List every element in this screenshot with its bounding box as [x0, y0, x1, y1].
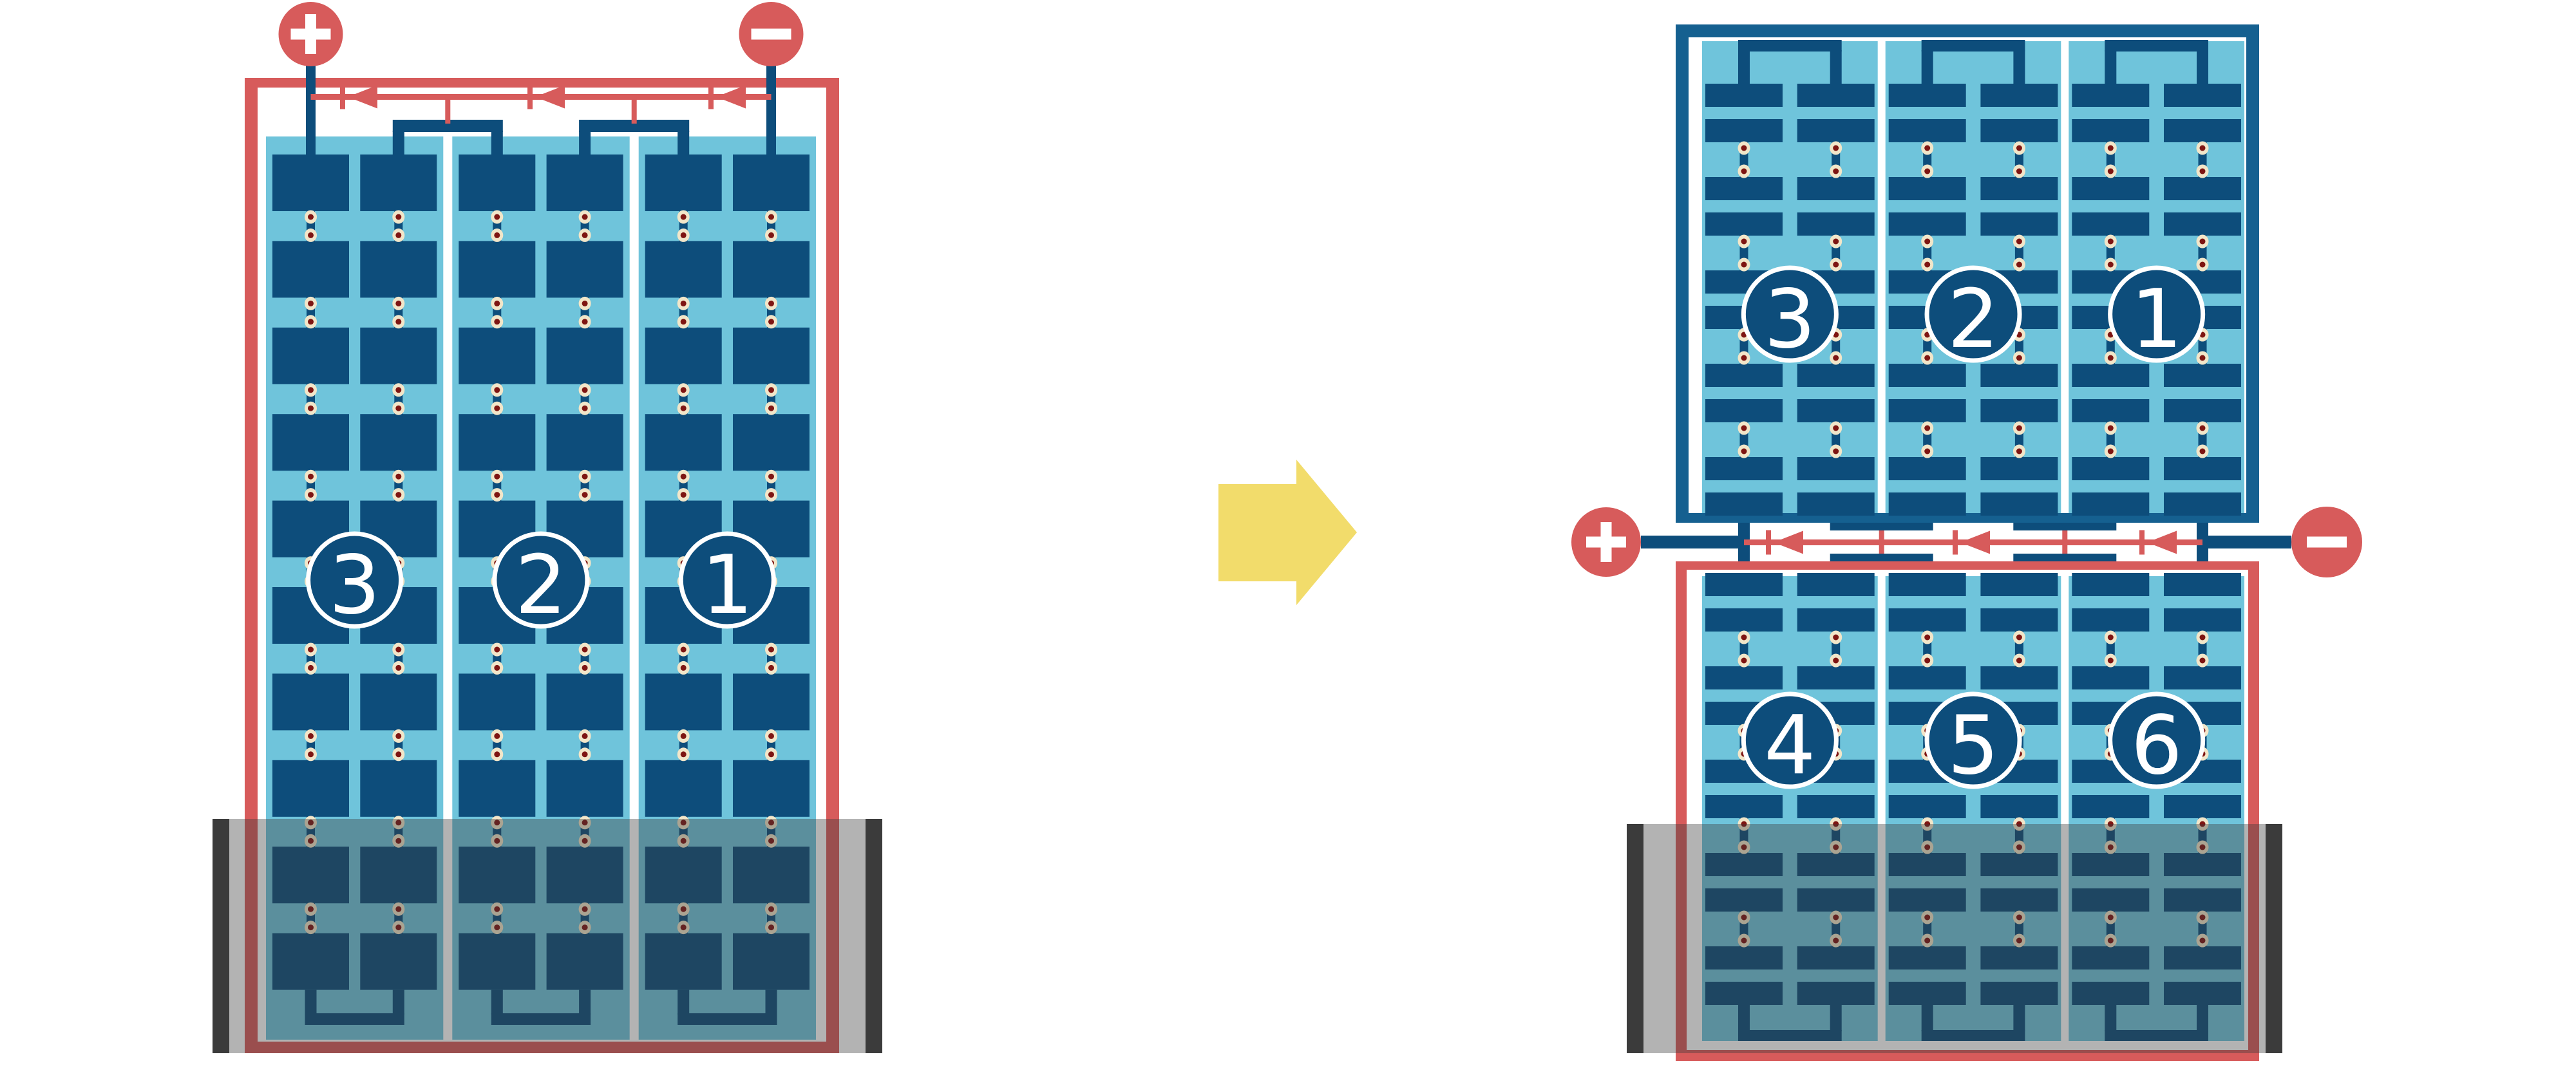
diode-triangle [1960, 531, 1990, 554]
bypass-diode-rail [1744, 530, 2202, 555]
terminal-minus-bar [2307, 537, 2347, 548]
solder-dot [308, 406, 314, 411]
solder-dot [494, 406, 500, 411]
solder-dot [308, 319, 314, 324]
solder-dot [2016, 449, 2022, 454]
solar-cell [547, 760, 623, 817]
solder-dot [681, 214, 687, 220]
transform-arrow [1218, 460, 1357, 605]
solder-dot [2108, 169, 2114, 174]
solar-cell [645, 414, 722, 471]
shade-overlay [1627, 824, 2282, 1053]
junction-tab-bottom [2013, 554, 2116, 561]
solar-cell [645, 328, 722, 384]
solar-cell [1889, 795, 1966, 818]
solder-dot [2108, 635, 2114, 641]
positive-terminal [1571, 507, 1641, 577]
solar-cell [360, 673, 437, 730]
solder-dot [582, 301, 588, 306]
solder-dot [681, 387, 687, 393]
negative-lead-wire [766, 59, 776, 194]
diode-tap [1879, 530, 1884, 554]
link-bar [1738, 40, 1842, 52]
solar-cell [1705, 492, 1783, 516]
solder-dot [1833, 449, 1839, 454]
solder-dot [494, 647, 500, 653]
solder-dot [2016, 635, 2022, 641]
diode-tap [2062, 530, 2067, 554]
diode-cathode-bar [340, 85, 345, 109]
solar-cell [2164, 84, 2241, 107]
link-bar [1922, 40, 2025, 52]
terminal-minus-bar [752, 29, 791, 40]
solder-dot [308, 387, 314, 393]
solar-cell [272, 673, 349, 730]
solar-cell [459, 328, 535, 384]
solder-dot [308, 665, 314, 671]
solder-dot [2108, 262, 2114, 268]
solder-dot [395, 301, 401, 306]
solar-cell [2164, 457, 2241, 480]
positive-lead-wire [306, 59, 316, 194]
solar-cell [1980, 795, 2058, 818]
solder-dot [308, 751, 314, 757]
solder-dot [1741, 426, 1747, 431]
solar-panel-diagram: 321 321456 [0, 0, 2576, 1068]
solar-cell [547, 155, 623, 211]
solder-dot [308, 214, 314, 220]
positive-bus [1641, 536, 1744, 548]
solder-dot [681, 647, 687, 653]
solar-cell [360, 155, 437, 211]
solar-cell [1705, 608, 1783, 632]
solar-cell [1797, 608, 1875, 632]
solar-cell [2072, 457, 2149, 480]
solar-cell [2072, 573, 2149, 596]
solar-cell [459, 760, 535, 817]
half-panel-bottom: 456 [1627, 561, 2282, 1061]
solar-cell [2164, 608, 2241, 632]
shade-overlay [213, 819, 882, 1053]
solder-dot [494, 751, 500, 757]
solder-dot [768, 232, 774, 238]
solder-dot [395, 214, 401, 220]
solder-dot [2108, 145, 2114, 151]
solder-dot [2200, 635, 2206, 641]
solar-cell [1980, 119, 2058, 142]
solder-dot [494, 301, 500, 306]
solder-dot [395, 665, 401, 671]
link-leg [1922, 50, 1933, 85]
solar-cell [1705, 795, 1783, 818]
solder-dot [768, 665, 774, 671]
diode-cathode-bar [527, 85, 533, 109]
solder-dot [1741, 449, 1747, 454]
solder-dot [768, 751, 774, 757]
solder-dot [2108, 449, 2114, 454]
shade-edge-bar [213, 819, 229, 1053]
solar-cell [645, 155, 722, 211]
solder-dot [1833, 145, 1839, 151]
solar-cell [547, 241, 623, 297]
solder-dot [1833, 239, 1839, 245]
solar-cell [2164, 492, 2241, 516]
solder-dot [2200, 262, 2206, 268]
diode-triangle [716, 86, 746, 109]
link-leg [677, 131, 689, 156]
solar-cell [1797, 364, 1875, 387]
solar-cell [459, 414, 535, 471]
string-divider [2061, 41, 2069, 513]
solar-cell [1797, 177, 1875, 200]
solder-dot [308, 301, 314, 306]
solder-dot [494, 474, 500, 480]
solder-dot [681, 751, 687, 757]
diode-triangle [2147, 531, 2177, 554]
solder-dot [1924, 239, 1930, 245]
solar-cell [459, 241, 535, 297]
solar-cell [272, 328, 349, 384]
solar-cell [1980, 399, 2058, 422]
panel-frame-blue [2246, 24, 2259, 523]
solder-dot [2200, 426, 2206, 431]
junction-tab-top [2013, 523, 2116, 530]
solder-dot [768, 387, 774, 393]
shade-translucent [1627, 824, 2282, 1053]
solar-cell [2072, 666, 2149, 689]
string-label-number: 5 [1947, 698, 1999, 792]
solar-cell [733, 414, 810, 471]
solar-cell [360, 241, 437, 297]
solder-dot [395, 751, 401, 757]
string-label-number: 3 [329, 538, 381, 632]
solder-dot [2016, 145, 2022, 151]
solder-dot [768, 214, 774, 220]
solder-dot [308, 232, 314, 238]
solder-dot [768, 647, 774, 653]
solder-dot [2200, 169, 2206, 174]
shade-edge-bar [2266, 824, 2282, 1053]
diode-tap [632, 97, 637, 124]
solar-cell [1797, 666, 1875, 689]
solar-cell [2072, 608, 2149, 632]
solar-cell [547, 414, 623, 471]
solar-cell [360, 414, 437, 471]
diode-cathode-bar [2139, 530, 2145, 555]
solder-dot [582, 492, 588, 498]
solar-cell [1980, 492, 2058, 516]
solder-dot [395, 647, 401, 653]
solar-cell [1889, 177, 1966, 200]
link-leg [1830, 50, 1842, 85]
solder-dot [681, 492, 687, 498]
solar-cell [2072, 212, 2149, 236]
solder-dot [395, 232, 401, 238]
string-label-number: 1 [701, 538, 753, 632]
solar-cell [2072, 364, 2149, 387]
diagram-stage: 321 321456 [0, 0, 2576, 1068]
solar-cell [2164, 666, 2241, 689]
solder-dot [681, 474, 687, 480]
solder-dot [768, 492, 774, 498]
solder-dot [2200, 449, 2206, 454]
solder-dot [1924, 449, 1930, 454]
solder-dot [2016, 239, 2022, 245]
solder-dot [1924, 262, 1930, 268]
solder-dot [395, 406, 401, 411]
solar-cell [2072, 795, 2149, 818]
solder-dot [582, 387, 588, 393]
string-label-number: 1 [2131, 272, 2183, 366]
solar-cell [1705, 666, 1783, 689]
solder-dot [395, 319, 401, 324]
solar-cell [2072, 399, 2149, 422]
solar-cell [272, 414, 349, 471]
solder-dot [1833, 169, 1839, 174]
solar-cell [1797, 399, 1875, 422]
solder-dot [1924, 355, 1930, 361]
solder-dot [494, 492, 500, 498]
link-leg [579, 131, 591, 156]
junction-tab-bottom [1830, 554, 1933, 561]
solar-cell [1889, 666, 1966, 689]
solar-cell [645, 241, 722, 297]
link-bar [2105, 40, 2208, 52]
positive-terminal [279, 2, 343, 66]
diode-tap [445, 97, 450, 124]
string-divider [1878, 41, 1886, 513]
link-leg [491, 131, 503, 156]
terminal-plus-bar [1601, 522, 1612, 562]
solder-dot [1924, 169, 1930, 174]
solder-dot [681, 232, 687, 238]
solder-dot [1924, 635, 1930, 641]
string-label-number: 2 [1947, 272, 1999, 366]
right-half-cut-assembly: 321456 [1571, 24, 2362, 1061]
solar-cell [1889, 84, 1966, 107]
solder-dot [308, 492, 314, 498]
solar-cell [547, 673, 623, 730]
string-label-number: 2 [515, 538, 567, 632]
solar-cell [1705, 364, 1783, 387]
solder-dot [582, 665, 588, 671]
solar-cell [1889, 492, 1966, 516]
junction-tab-top [1830, 523, 1933, 530]
link-leg [2197, 50, 2208, 85]
solar-cell [645, 760, 722, 817]
solar-cell [459, 673, 535, 730]
solder-dot [768, 733, 774, 739]
solder-dot [582, 647, 588, 653]
panel-frame-blue [1676, 24, 1689, 523]
solder-dot [1833, 262, 1839, 268]
panel-frame-blue [1676, 24, 2259, 37]
solar-cell [1705, 177, 1783, 200]
solar-cell [1797, 84, 1875, 107]
solar-cell [360, 328, 437, 384]
solder-dot [1924, 426, 1930, 431]
solder-dot [1741, 658, 1747, 664]
solar-cell [2164, 795, 2241, 818]
solar-cell [459, 155, 535, 211]
solar-cell [1980, 364, 2058, 387]
solar-cell [2164, 177, 2241, 200]
solder-dot [2016, 658, 2022, 664]
solar-cell [1797, 492, 1875, 516]
link-leg [1738, 50, 1750, 85]
solar-cell [1980, 177, 2058, 200]
solder-dot [2016, 169, 2022, 174]
panel-frame-red [1676, 561, 2259, 570]
diode-triangle [535, 86, 565, 109]
diode-cathode-bar [1766, 530, 1771, 555]
terminal-plus-bar [305, 14, 316, 54]
solder-dot [1924, 145, 1930, 151]
solder-dot [1833, 635, 1839, 641]
string-label-number: 6 [2131, 698, 2183, 792]
solder-dot [2016, 355, 2022, 361]
solder-dot [494, 733, 500, 739]
solar-cell [1797, 212, 1875, 236]
solar-cell [1889, 212, 1966, 236]
solder-dot [681, 301, 687, 306]
solar-cell [272, 760, 349, 817]
solar-cell [2164, 573, 2241, 596]
solder-dot [1741, 262, 1747, 268]
solar-cell [2072, 177, 2149, 200]
solder-dot [1741, 239, 1747, 245]
solar-cell [733, 673, 810, 730]
solder-dot [395, 733, 401, 739]
solar-cell [1889, 399, 1966, 422]
solar-cell [1980, 608, 2058, 632]
solar-cell [2072, 492, 2149, 516]
solder-dot [582, 214, 588, 220]
solder-dot [395, 474, 401, 480]
solar-cell [733, 760, 810, 817]
diode-cathode-bar [1953, 530, 1958, 555]
solder-dot [1741, 355, 1747, 361]
solder-dot [681, 319, 687, 324]
solar-cell [1705, 212, 1783, 236]
solder-dot [308, 733, 314, 739]
solder-dot [494, 214, 500, 220]
solder-dot [768, 319, 774, 324]
solar-cell [1889, 457, 1966, 480]
solder-dot [2108, 355, 2114, 361]
solder-dot [2200, 145, 2206, 151]
solar-cell [2164, 119, 2241, 142]
solder-dot [308, 647, 314, 653]
solar-cell [733, 328, 810, 384]
solar-cell [2164, 364, 2241, 387]
solder-dot [2108, 426, 2114, 431]
half-panel-top: 321 [1676, 24, 2259, 523]
solar-cell [1980, 666, 2058, 689]
solar-cell [1889, 119, 1966, 142]
solder-dot [582, 751, 588, 757]
solder-dot [582, 406, 588, 411]
solar-cell [1980, 457, 2058, 480]
shade-translucent [213, 819, 882, 1053]
bypass-diode-rail [311, 85, 772, 124]
solar-cell [1705, 84, 1783, 107]
solar-cell [1797, 119, 1875, 142]
solder-dot [1833, 426, 1839, 431]
solder-dot [2200, 355, 2206, 361]
solar-cell [360, 760, 437, 817]
negative-terminal [739, 2, 804, 66]
solar-cell [1797, 457, 1875, 480]
solder-dot [582, 474, 588, 480]
solder-dot [768, 474, 774, 480]
solder-dot [768, 406, 774, 411]
string-label-number: 3 [1764, 272, 1815, 366]
negative-terminal [2291, 507, 2362, 577]
solar-cell [1705, 399, 1783, 422]
solder-dot [1833, 355, 1839, 361]
solar-cell [1889, 573, 1966, 596]
solder-dot [582, 319, 588, 324]
solder-dot [582, 733, 588, 739]
solar-cell [272, 241, 349, 297]
solder-dot [2108, 239, 2114, 245]
link-leg [2105, 50, 2116, 85]
solder-dot [395, 492, 401, 498]
solder-dot [494, 665, 500, 671]
solar-cell [2164, 399, 2241, 422]
solder-dot [768, 301, 774, 306]
solar-cell [645, 673, 722, 730]
solar-cell [733, 241, 810, 297]
solar-cell [1705, 457, 1783, 480]
solder-dot [2200, 658, 2206, 664]
solder-dot [681, 665, 687, 671]
diode-triangle [1774, 531, 1803, 554]
left-full-cell-panel: 321 [213, 2, 882, 1053]
solar-cell [1980, 84, 2058, 107]
solar-cell [2072, 119, 2149, 142]
solar-cell [1980, 573, 2058, 596]
right-arrow-icon [1218, 460, 1357, 605]
diode-triangle [348, 86, 377, 109]
link-leg [393, 131, 404, 156]
solder-dot [494, 232, 500, 238]
link-leg [2013, 50, 2025, 85]
solder-dot [2108, 658, 2114, 664]
solder-dot [395, 387, 401, 393]
shade-edge-bar [866, 819, 882, 1053]
string-label-number: 4 [1764, 698, 1815, 792]
solar-cell [547, 328, 623, 384]
solder-dot [494, 387, 500, 393]
solar-cell [1889, 608, 1966, 632]
solder-dot [2200, 239, 2206, 245]
solar-cell [1980, 212, 2058, 236]
solder-dot [1833, 658, 1839, 664]
solder-dot [1741, 145, 1747, 151]
solder-dot [681, 733, 687, 739]
panel-frame-red [245, 78, 839, 88]
solder-dot [494, 319, 500, 324]
solar-cell [1797, 573, 1875, 596]
solder-dot [1924, 658, 1930, 664]
solar-cell [2164, 212, 2241, 236]
solder-dot [308, 474, 314, 480]
diode-cathode-bar [708, 85, 714, 109]
solar-cell [1705, 119, 1783, 142]
solar-cell [1797, 795, 1875, 818]
